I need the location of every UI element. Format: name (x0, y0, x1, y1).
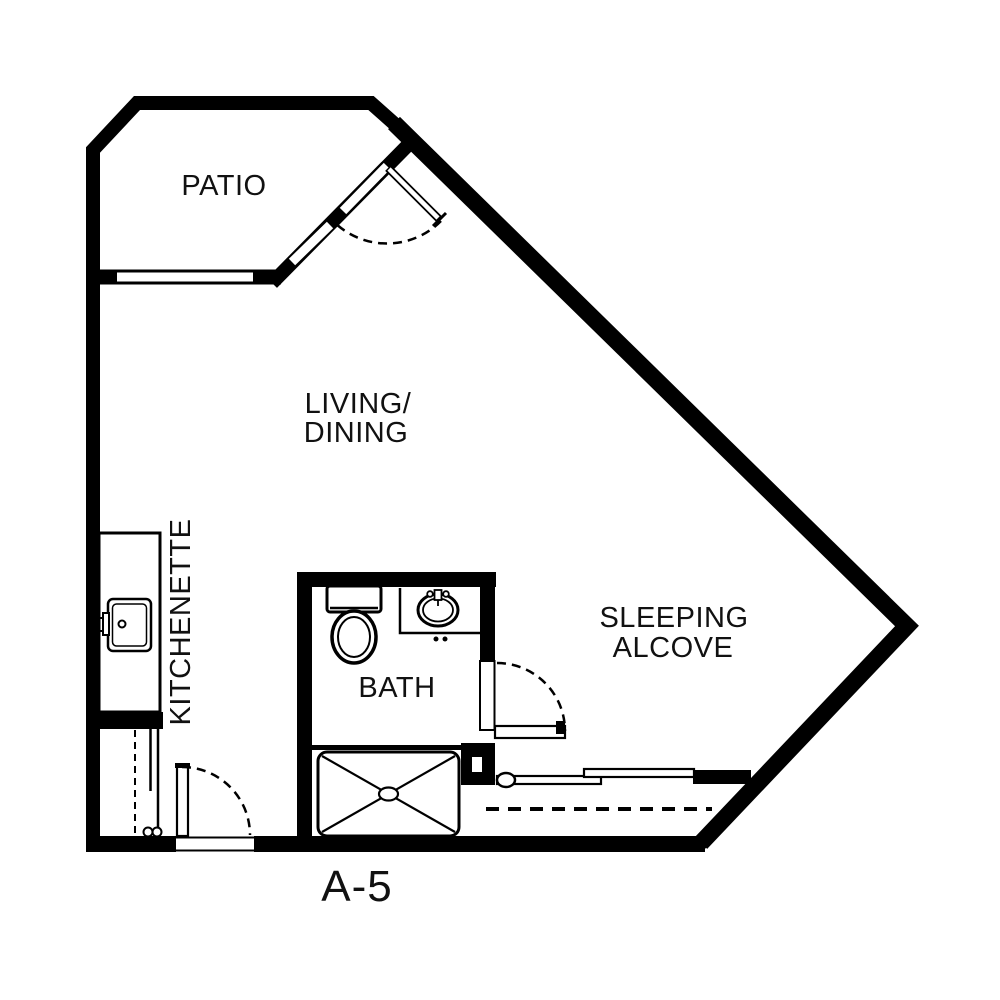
main-diagonal-wall (394, 123, 907, 843)
alcove-closet-wall-stub (693, 770, 751, 784)
bath-door-leaf (495, 726, 565, 738)
kitchenette (87, 533, 163, 729)
partition-window-2 (343, 166, 387, 211)
room-label-kitchenette: KITCHENETTE (165, 519, 197, 726)
bath-faucet-handle-1 (427, 591, 433, 597)
entry-door-swing-arc (182, 767, 250, 835)
room-label-sleeping-line1: SLEEPING (599, 602, 748, 634)
entry-door-leaf (177, 766, 188, 836)
toilet-bowl-inner (338, 617, 370, 657)
bath-faucet-handle-2 (443, 591, 449, 597)
bath-wall-notch (472, 757, 482, 772)
alcove-closet-handle (497, 773, 515, 787)
entry-door (175, 763, 250, 836)
alcove-closet-panel-right (584, 769, 694, 777)
patio-walls (93, 143, 410, 283)
room-label-patio: PATIO (181, 170, 266, 202)
entry-threshold (176, 835, 254, 853)
entry-area (135, 728, 254, 853)
patio-door-leaf-core (389, 169, 438, 218)
entry-closet-handle-2 (153, 828, 162, 837)
partition-window-1 (292, 225, 330, 262)
room-label-bath: BATH (358, 672, 435, 704)
alcove-closet (486, 769, 751, 809)
floor-plan: PATIO LIVING/ DINING KITCHENETTE BATH SL… (0, 0, 1000, 1000)
toilet-icon (327, 586, 381, 663)
floorplan-svg: PATIO LIVING/ DINING KITCHENETTE BATH SL… (0, 0, 1000, 1000)
room-label-sleeping-line2: ALCOVE (613, 632, 734, 664)
kitchen-faucet-spout (119, 621, 126, 628)
kitchen-sink-inner (113, 604, 147, 646)
shower-drain (379, 788, 398, 801)
bath-sink-icon (400, 588, 481, 642)
shower-icon (318, 752, 459, 836)
vanity-knob-1 (434, 637, 439, 642)
vanity-knob-2 (443, 637, 448, 642)
bath-faucet-body (435, 590, 442, 600)
bath-door (495, 663, 565, 738)
patio-door-swing-arc (333, 221, 441, 244)
room-label-living-line2: DINING (304, 417, 409, 449)
entry-closet-handle-1 (144, 828, 153, 837)
entry-closet (135, 728, 162, 837)
room-label-living-line1: LIVING/ (305, 388, 412, 420)
bath-door-swing-arc (497, 663, 565, 731)
plan-title: A-5 (321, 862, 392, 911)
bath-door-jamb (480, 661, 495, 730)
kitchen-wall-stub (87, 712, 163, 729)
